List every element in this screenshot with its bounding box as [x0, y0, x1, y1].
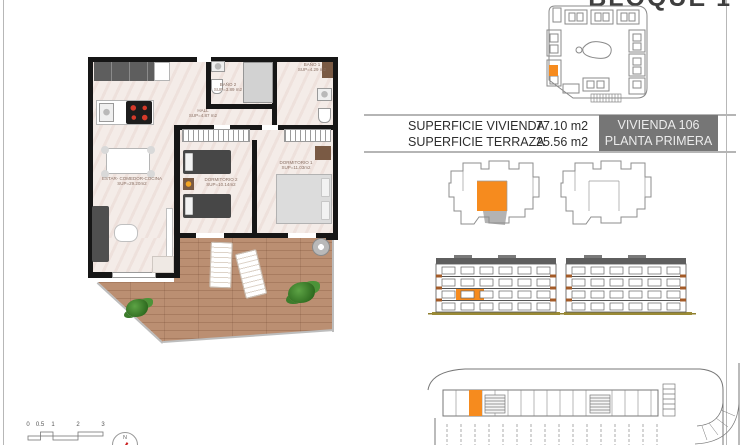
- room-label-bano2: BAÑO 2 SUP=3.89 m2: [212, 82, 244, 93]
- north-label: N: [123, 435, 127, 441]
- terrace-rail-right: [332, 238, 334, 332]
- pillow: [185, 153, 193, 171]
- parking-stalls: [447, 424, 657, 445]
- wall: [252, 140, 257, 233]
- tv-console: [166, 208, 173, 262]
- room-area: SUP=29.20m2: [100, 181, 164, 186]
- terrace-step: [152, 256, 174, 273]
- scale-tick-label: 3: [101, 422, 104, 428]
- room-label-dormitorio2: DORMITORIO 2 SUP=10.14m2: [192, 177, 250, 188]
- sofa: [92, 206, 109, 262]
- wall: [174, 128, 180, 278]
- room-area: SUP=11.03m2: [270, 165, 322, 170]
- highlight-unit: [477, 181, 507, 211]
- unit-badge-line1: VIVIENDA 106: [599, 117, 718, 133]
- building-cluster: [563, 78, 609, 93]
- scale-tick-label: 0: [26, 422, 29, 428]
- terrace-door-gap: [288, 233, 316, 238]
- room-label-hall: HALL SUP=4.87 m2: [186, 108, 220, 119]
- door-gap: [262, 125, 278, 130]
- washbasin: [211, 61, 225, 72]
- elevation-building-left: [436, 255, 556, 312]
- highlight-storage: [469, 390, 482, 416]
- room-label-estar: ESTAR- COMEDOR-COCINA SUP=29.20m2: [100, 176, 164, 187]
- terrace-door-gap: [196, 233, 224, 238]
- building-cluster: [629, 30, 645, 94]
- pillow: [321, 201, 330, 220]
- unit-badge-line2: PLANTA PRIMERA: [599, 133, 718, 149]
- building-elevations: [428, 250, 696, 325]
- table-row-value: 77.10 m2: [536, 119, 588, 133]
- room-label-dormitorio1: DORMITORIO 1 SUP=11.03m2: [270, 160, 322, 171]
- site-plan-key: [533, 2, 659, 112]
- room-area: SUP=10.14m2: [192, 182, 250, 187]
- unit-location-diagrams: [443, 155, 665, 235]
- table-row-value: 25.56 m2: [536, 135, 588, 149]
- dining-chairs: [101, 146, 109, 154]
- unit-badge: VIVIENDA 106 PLANTA PRIMERA: [599, 115, 718, 151]
- wardrobe: [182, 129, 250, 142]
- living-window: [112, 272, 156, 278]
- parking-plan: [413, 352, 740, 445]
- table-row-label: SUPERFICIE VIVIENDA: [408, 119, 545, 133]
- floor-plate-right: [561, 161, 651, 224]
- room-area: SUP=3.89 m2: [212, 87, 244, 92]
- pool: [583, 42, 612, 59]
- building-cluster: [565, 10, 639, 24]
- coffee-table: [114, 224, 138, 242]
- dining-table: [106, 148, 150, 174]
- elevation-building-right: [566, 255, 686, 312]
- scale-tick-label: 0.5: [36, 422, 44, 428]
- entry-door-gap: [197, 57, 211, 62]
- room-area: SUP=4.87 m2: [186, 113, 220, 118]
- stove: [126, 101, 152, 124]
- fridge: [154, 62, 170, 81]
- wall: [326, 233, 338, 240]
- sun-lounger: [209, 242, 233, 289]
- wardrobe: [284, 129, 331, 142]
- washbasin: [317, 88, 332, 101]
- kitchen-sink: [99, 103, 114, 122]
- ground-pad: [432, 312, 560, 315]
- table-border-bottom: [364, 151, 736, 153]
- room-area: SUP=4.29 m2: [294, 67, 330, 72]
- ground-pad: [564, 312, 692, 315]
- wall: [333, 57, 338, 240]
- shower: [243, 62, 273, 103]
- pillow: [185, 197, 193, 215]
- toilet: [318, 108, 331, 123]
- unit-marker: [549, 65, 558, 76]
- outdoor-shower: [312, 238, 330, 256]
- bathroom-vanity: [315, 146, 331, 160]
- table-row-label: SUPERFICIE TERRAZA: [408, 135, 545, 149]
- pillow: [321, 178, 330, 197]
- plan-sheet: BLOQUE 1: [0, 0, 740, 445]
- scale-tick-label: 2: [76, 422, 79, 428]
- room-label-bano1: BAÑO 1 SUP=4.29 m2: [294, 62, 330, 73]
- scale-tick-label: 1: [51, 422, 54, 428]
- ramp: [663, 384, 739, 444]
